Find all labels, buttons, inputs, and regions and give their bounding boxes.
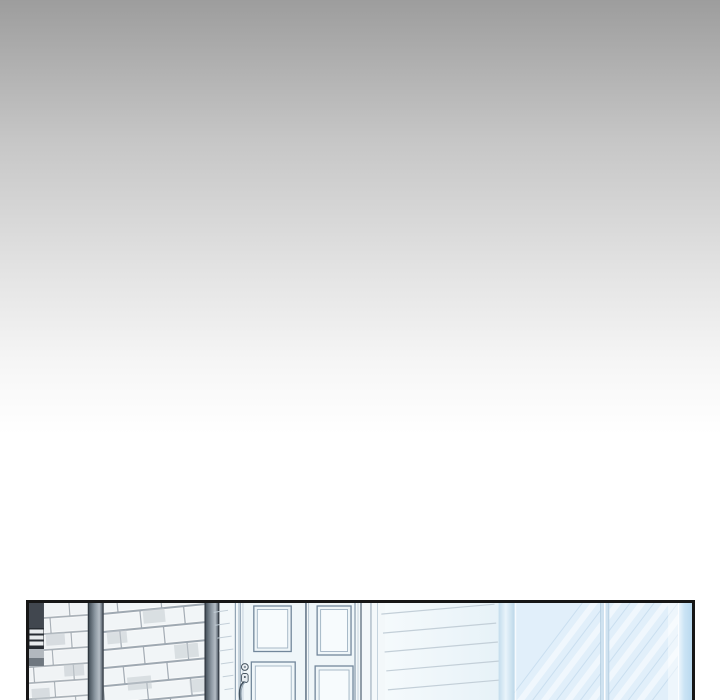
metal-post-right (204, 603, 219, 700)
gate-post (29, 603, 44, 666)
gradient-backdrop (0, 0, 720, 700)
entrance-doors (233, 603, 385, 700)
glass-edge-strip (678, 603, 692, 700)
metal-post-left (88, 603, 104, 700)
comic-panel (26, 600, 695, 700)
glass-mullion (600, 603, 609, 700)
corner-trim (499, 603, 515, 700)
brick-wall-right (104, 603, 211, 700)
glass-wall (504, 603, 692, 700)
door-right-leaf (309, 603, 358, 700)
door-left-leaf (239, 603, 305, 700)
door-right-jamb (359, 603, 385, 700)
clapboard-siding (369, 603, 513, 700)
panel-scene (29, 603, 692, 700)
